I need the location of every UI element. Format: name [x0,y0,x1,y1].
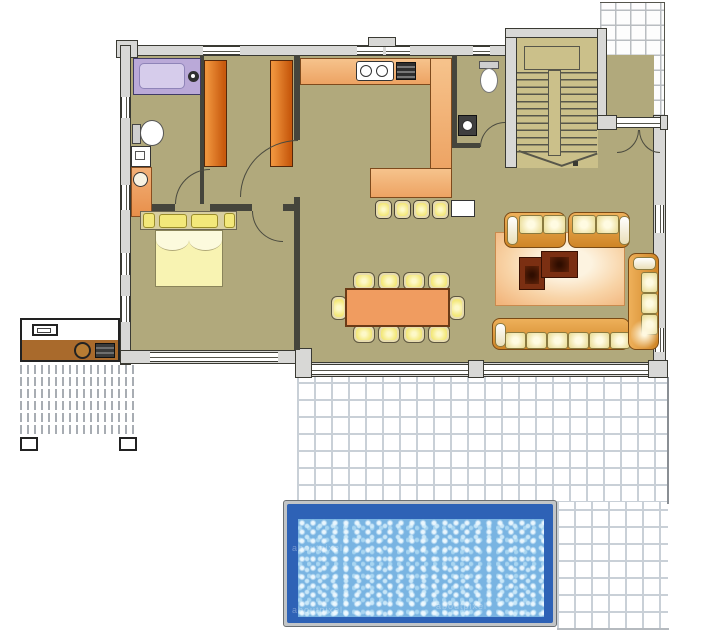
window-sliding [150,352,278,362]
stair-north-wall [505,28,600,38]
dining-chair [428,325,450,343]
kitchen-stove [396,62,416,80]
exterior-wall-top [118,45,517,56]
outdoor-sink [32,324,58,336]
window [357,46,383,55]
bar-stool [432,200,449,219]
kitchen-side-counter [451,200,475,217]
sofa-corner-seat [631,320,658,348]
bbq-grill-plate [95,343,115,358]
wc-west-wall [452,55,457,148]
window [121,185,130,210]
window-band [484,364,648,375]
window [121,97,130,118]
wardrobe [204,60,227,167]
bedroom-north-wall [210,204,252,211]
sofa-arm [507,216,518,245]
bathroom-toilet-bowl [140,120,164,146]
dining-chair [353,325,375,343]
kitchen-counter [370,168,452,198]
kitchen-counter [430,58,452,172]
sofa-cushion [572,215,596,234]
pool-water [298,519,544,617]
bathtub-drain [188,71,199,82]
window-band [310,364,468,375]
sofa-long [492,318,630,350]
sofa-cushion [641,272,658,293]
window [473,46,490,55]
sofa-cushion [505,332,526,349]
window [655,205,664,233]
sofa-cushion [596,215,619,234]
wc-sink [458,115,477,136]
sofa-cushion [519,215,543,234]
dining-chair [378,325,400,343]
bar-stool [413,200,430,219]
watermark: aboutpixel [292,543,343,553]
dining-chair [403,325,425,343]
bbq-grill-burner [74,342,91,359]
bed-pillow [224,213,235,228]
sofa-corner [628,253,659,350]
wall-pillar [295,348,312,378]
dining-table [345,288,450,327]
outdoor-kitchen-counter [20,318,120,362]
bathroom-shelf [131,146,151,167]
deck-post [20,437,38,451]
bed-pillow [143,213,155,228]
bathtub [133,58,201,95]
dining-chair [449,296,465,320]
entry-wall [597,115,617,130]
window [386,46,410,55]
coffee-table [541,251,578,278]
window [121,253,130,275]
terrace-tiles [297,377,668,503]
kitchen-sink-unit [356,61,394,81]
sofa-cushion [589,332,610,349]
sofa-arm [633,257,656,270]
sofa-cushion [526,332,547,349]
deck [20,360,137,437]
window [121,296,130,322]
wall-pillar [648,360,668,378]
terrace-edge [667,377,669,504]
bed-pillow [191,214,218,228]
swimming-pool: aboutpixel aboutpixel aboutpixel [283,500,557,627]
sofa-cushion [543,215,566,234]
wc-south-wall [452,143,480,148]
sofa-cushion [610,332,630,349]
stair-landing [524,46,580,70]
sofa-arm [619,216,630,245]
entry-wall [660,115,668,130]
watermark: aboutpixel [436,601,487,611]
sofa [504,212,566,248]
bed-pillow [159,214,187,228]
stair-arrow-dot [573,161,578,166]
sofa-cushion [547,332,568,349]
bar-stool [375,200,392,219]
watermark: aboutpixel [292,605,343,615]
stair-divider [548,70,561,156]
entry-door-threshold [617,117,660,128]
bed [155,230,223,287]
terrace-tiles [557,502,668,630]
bathroom-vanity [131,167,152,217]
sofa-cushion [568,332,589,349]
sofa [568,212,630,248]
window [203,46,240,55]
sofa-cushion [641,293,658,314]
bedroom-east-wall [294,197,300,350]
bar-stool [394,200,411,219]
deck-post [119,437,137,451]
floor-plan: aboutpixel aboutpixel aboutpixel [0,0,717,638]
wall-pillar [468,360,484,378]
wc-toilet-bowl [480,68,498,93]
terrace-edge [557,628,669,630]
stair-west-wall [505,28,517,168]
bathroom-sink [133,172,148,187]
